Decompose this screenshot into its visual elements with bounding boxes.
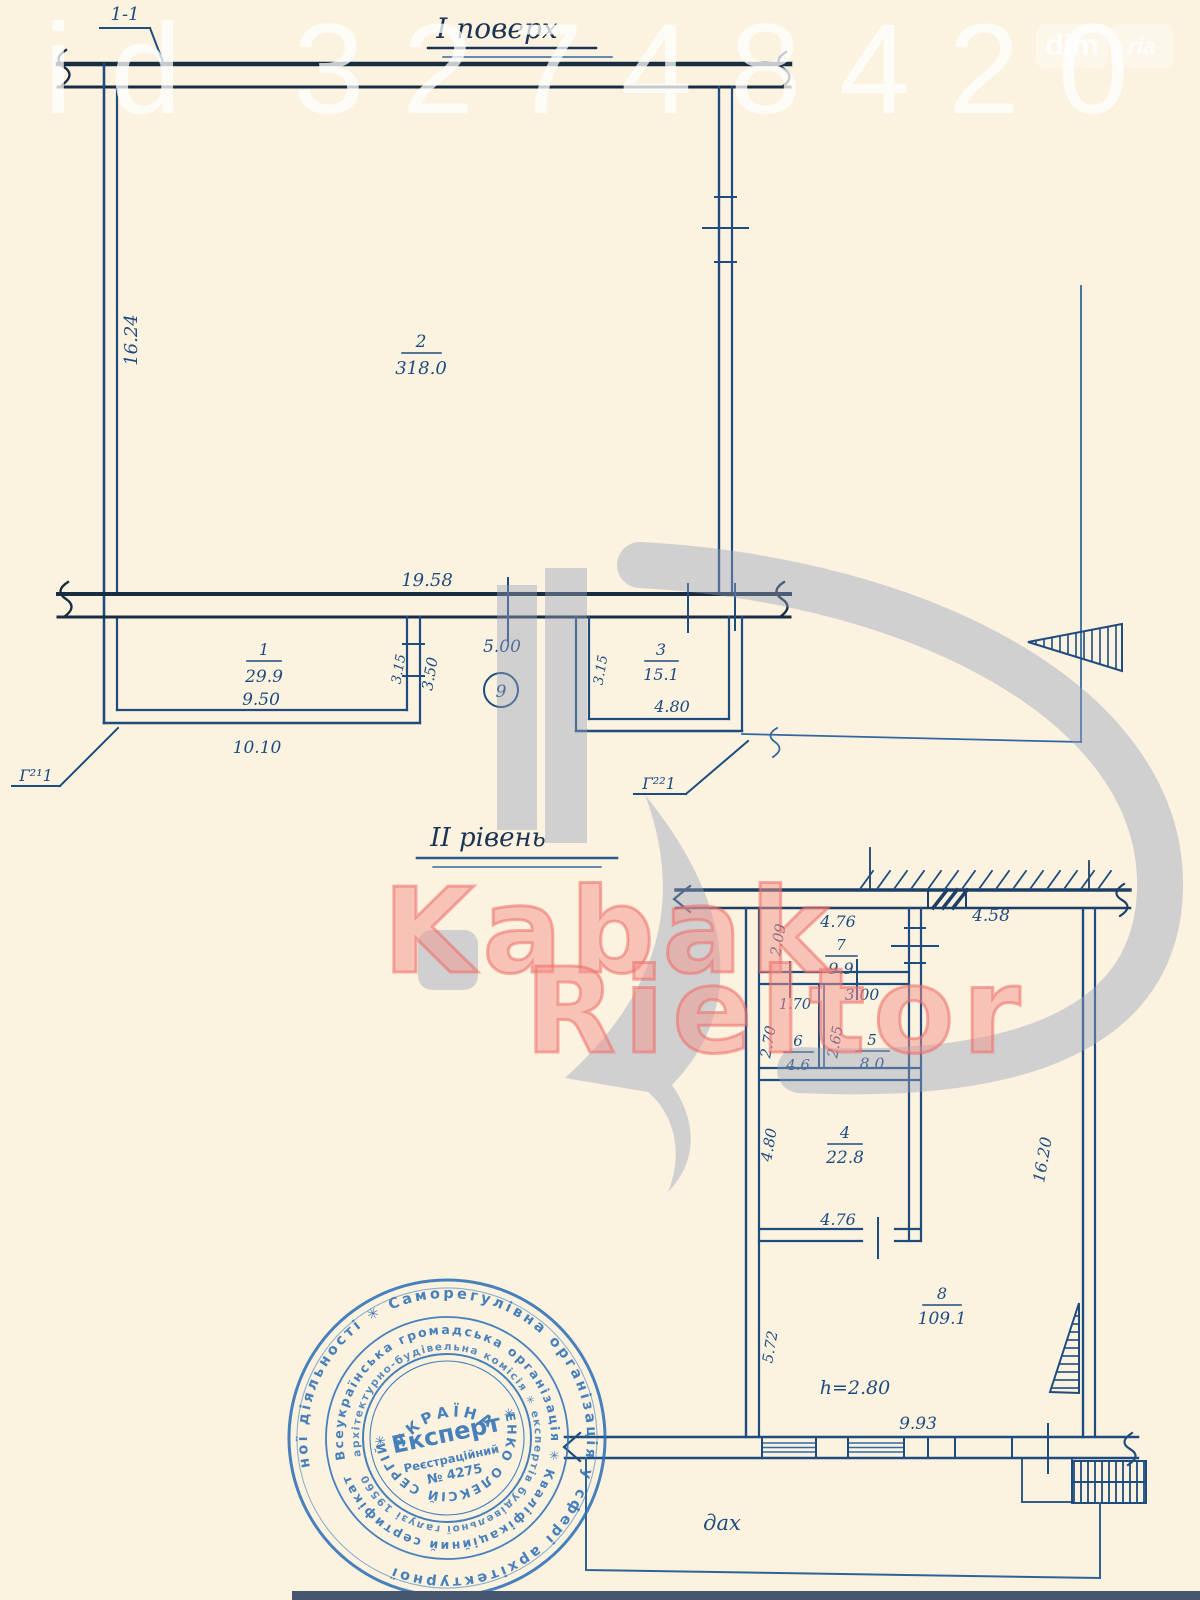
- room1-number: 1: [259, 640, 269, 659]
- expert-stamp: ної діяльності ✳ Саморегулівна організац…: [0, 0, 634, 1600]
- dim-room4-width: 4.76: [819, 1210, 856, 1229]
- brand-badge-ria: ria: [1111, 24, 1173, 68]
- room4-area: 22.8: [825, 1148, 864, 1168]
- floorplan-scan-page: 1-1 І поверх 16.24 2 318.0 19.58 1 29.9 …: [0, 0, 1200, 1600]
- brand-badge: dim ria: [1036, 24, 1173, 68]
- dim-top-width: 19.58: [401, 570, 453, 591]
- dim-terrace-width: 4.58: [971, 906, 1010, 926]
- roof-outline: [586, 1458, 1100, 1578]
- dim-left-wall: 16.24: [121, 314, 142, 366]
- floor1-room2-right-wall: [703, 87, 748, 592]
- photo-id-watermark: id 32748420: [44, 6, 1167, 134]
- dim-room4-depth: 4.80: [757, 1126, 781, 1163]
- room3-area: 15.1: [643, 665, 679, 684]
- dim-hall-depth: 5.72: [760, 1330, 781, 1365]
- room1-area: 29.9: [244, 667, 283, 687]
- floor1-ref-right: Г²²1: [641, 774, 676, 793]
- dim-ceiling-height: h=2.80: [820, 1377, 890, 1399]
- floor2-bottom-wall: [564, 1424, 1138, 1473]
- dim-room3-depth: 3.15: [591, 654, 612, 686]
- roof-label: дах: [703, 1511, 741, 1535]
- floorplan-drawing: 1-1 І поверх 16.24 2 318.0 19.58 1 29.9 …: [0, 0, 1200, 1600]
- floor2-stairs-icon: [1050, 1303, 1079, 1393]
- realtor-watermark-line2: Rieltor: [525, 952, 1028, 1070]
- scan-edge-strip: [292, 1591, 1200, 1600]
- floor2-top-hatch: [860, 871, 1111, 889]
- dim-room3-width: 4.80: [653, 697, 690, 716]
- svg-text:ЧИРЧЕНКО ОЛЕКСІЙ СЕРГІЙОВИЧ: ЧИРЧЕНКО ОЛЕКСІЙ СЕРГІЙОВИЧ: [0, 4, 533, 1597]
- dim-hall-height: 16.20: [1029, 1136, 1056, 1184]
- room3-number: 3: [656, 640, 666, 659]
- dim-room1-outer: 10.10: [233, 738, 282, 758]
- room8-number: 8: [937, 1284, 947, 1303]
- room4-number: 4: [839, 1123, 850, 1142]
- floor2-exterior-stairs-icon: [1072, 1461, 1146, 1503]
- floor1-ref-leaders: [12, 728, 748, 794]
- brand-badge-dim: dim: [1036, 24, 1108, 68]
- floor1-ref-left: Г²¹1: [18, 766, 53, 785]
- room2-number: 2: [415, 332, 427, 352]
- dim-hall-width: 9.93: [899, 1414, 937, 1434]
- room8-area: 109.1: [918, 1309, 967, 1329]
- dim-room1-inner: 9.50: [242, 690, 280, 710]
- dim-room1-depth-outer: 3.50: [418, 655, 442, 691]
- floor1-left-wall: [104, 64, 117, 723]
- stamp-expert-name: ЧИРЧЕНКО ОЛЕКСІЙ СЕРГІЙОВИЧ: [0, 4, 533, 1597]
- room2-area: 318.0: [395, 358, 447, 379]
